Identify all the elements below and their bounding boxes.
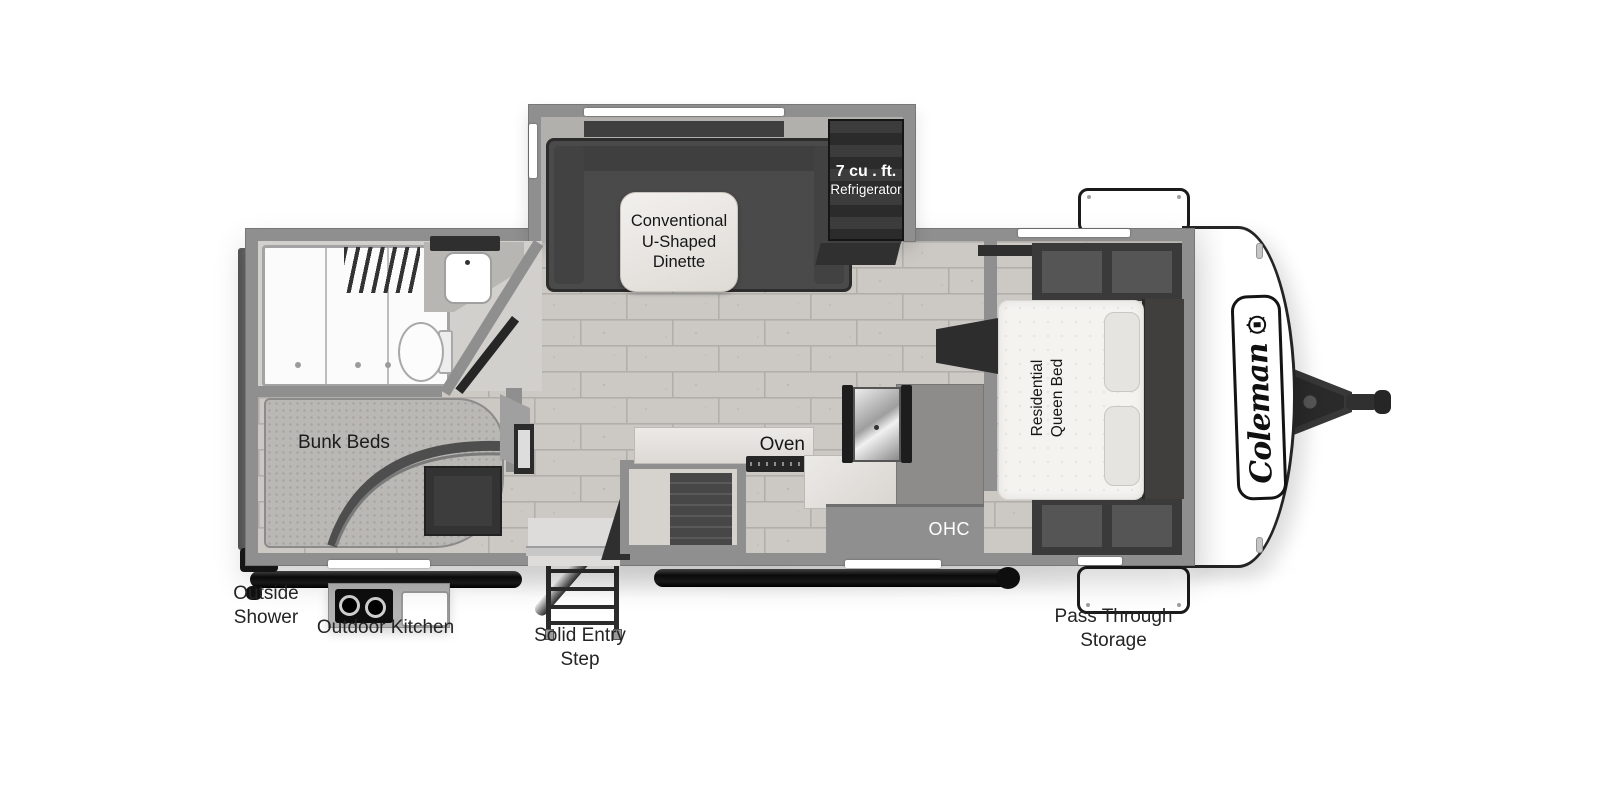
dinette-table-label: Conventional U-Shaped Dinette [620, 192, 738, 292]
awning-tube-front [654, 569, 1014, 587]
bedroom-dresser [1142, 299, 1184, 499]
bedroom-bottom-window [1078, 557, 1122, 565]
floor-plan-canvas: Coleman [0, 0, 1600, 800]
pantry-cabinet [620, 460, 746, 554]
ohc-label: OHC [929, 519, 971, 540]
outdoor-kitchen-label: Outdoor Kitchen [298, 616, 473, 640]
step-rung [548, 569, 616, 573]
kitchen-sink [853, 387, 901, 462]
awning-tube-end-cap [996, 567, 1020, 589]
overhead-cabinet: OHC [826, 504, 984, 562]
fridge-label-line2: Refrigerator [830, 182, 901, 198]
bunk-storage-cabinet [424, 466, 502, 536]
entry-step-label: Solid Entry Step [512, 624, 648, 673]
slide-out-window-glass [584, 121, 784, 137]
bed-label-line1: Residential [1028, 360, 1048, 437]
overhead-microwave-cabinet [815, 243, 900, 265]
dinette-label-line3: Dinette [653, 252, 705, 273]
wardrobe-door-panel [1112, 505, 1172, 547]
shower-glass-panel [325, 248, 327, 384]
kitchen-window [845, 560, 941, 568]
range-knobs-icon [750, 462, 806, 466]
coleman-lantern-icon [1244, 311, 1269, 336]
cap-hinge-icon [1256, 537, 1263, 553]
screw-icon [1177, 195, 1181, 199]
bathroom-wall [258, 386, 442, 397]
coleman-logo-inner: Coleman [1233, 311, 1285, 484]
step-rung [548, 605, 616, 609]
towel-rack [344, 247, 420, 293]
queen-bed-label: Residential Queen Bed [1025, 298, 1071, 498]
wardrobe-door-panel [1042, 251, 1102, 293]
cabinet-panel [434, 476, 492, 526]
bathroom-sink [444, 252, 492, 304]
pantry-shelves [670, 473, 732, 545]
faucet-icon [465, 260, 470, 265]
cap-hinge-icon [1256, 243, 1263, 259]
pass-through-label-line1: Pass Through [1036, 605, 1191, 629]
sofa-back-cushion [554, 146, 844, 171]
bedroom-wardrobe-top [1032, 243, 1182, 301]
coleman-logo-badge: Coleman [1230, 294, 1287, 501]
screw-icon [1087, 195, 1091, 199]
oven-label: Oven [760, 434, 805, 456]
faucet-icon [874, 425, 879, 430]
sink-side-rail [842, 385, 853, 463]
oven-range [746, 456, 810, 472]
wardrobe-door-panel [1112, 251, 1172, 293]
bed-label-line2: Queen Bed [1048, 359, 1068, 437]
slide-out-window [584, 108, 784, 116]
kitchen-counter-corner [804, 455, 900, 509]
pillow [1104, 312, 1140, 392]
outside-shower-label-line1: Outside [205, 582, 327, 606]
step-rung [548, 587, 616, 591]
drain-icon [385, 362, 391, 368]
coleman-logo-text: Coleman [1240, 342, 1280, 484]
drain-icon [355, 362, 361, 368]
burner-icon [339, 595, 360, 616]
bedroom-wardrobe-bottom [1032, 497, 1182, 555]
medicine-cabinet [430, 236, 500, 251]
fridge-label-line1: 7 cu . ft. [836, 162, 896, 181]
slide-out-side-window [529, 124, 537, 178]
window-glass [518, 430, 530, 468]
dinette-label-line2: U-Shaped [642, 232, 716, 253]
pillow [1104, 406, 1140, 486]
entry-step-label-line1: Solid Entry [512, 624, 648, 648]
dinette-label-line1: Conventional [631, 211, 727, 232]
pass-through-label-line2: Storage [1036, 629, 1191, 653]
bedroom-top-window [1018, 229, 1130, 237]
bunk-room-window [328, 560, 430, 568]
burner-icon [365, 597, 386, 618]
entry-step-label-line2: Step [512, 648, 648, 672]
drain-icon [295, 362, 301, 368]
wardrobe-door-panel [1042, 505, 1102, 547]
refrigerator: 7 cu . ft. Refrigerator [828, 119, 904, 241]
toilet [398, 322, 444, 382]
bunk-window-frame [514, 424, 534, 474]
sink-side-rail [901, 385, 912, 463]
pass-through-storage-label: Pass Through Storage [1036, 605, 1191, 654]
sofa-arm [554, 146, 584, 284]
